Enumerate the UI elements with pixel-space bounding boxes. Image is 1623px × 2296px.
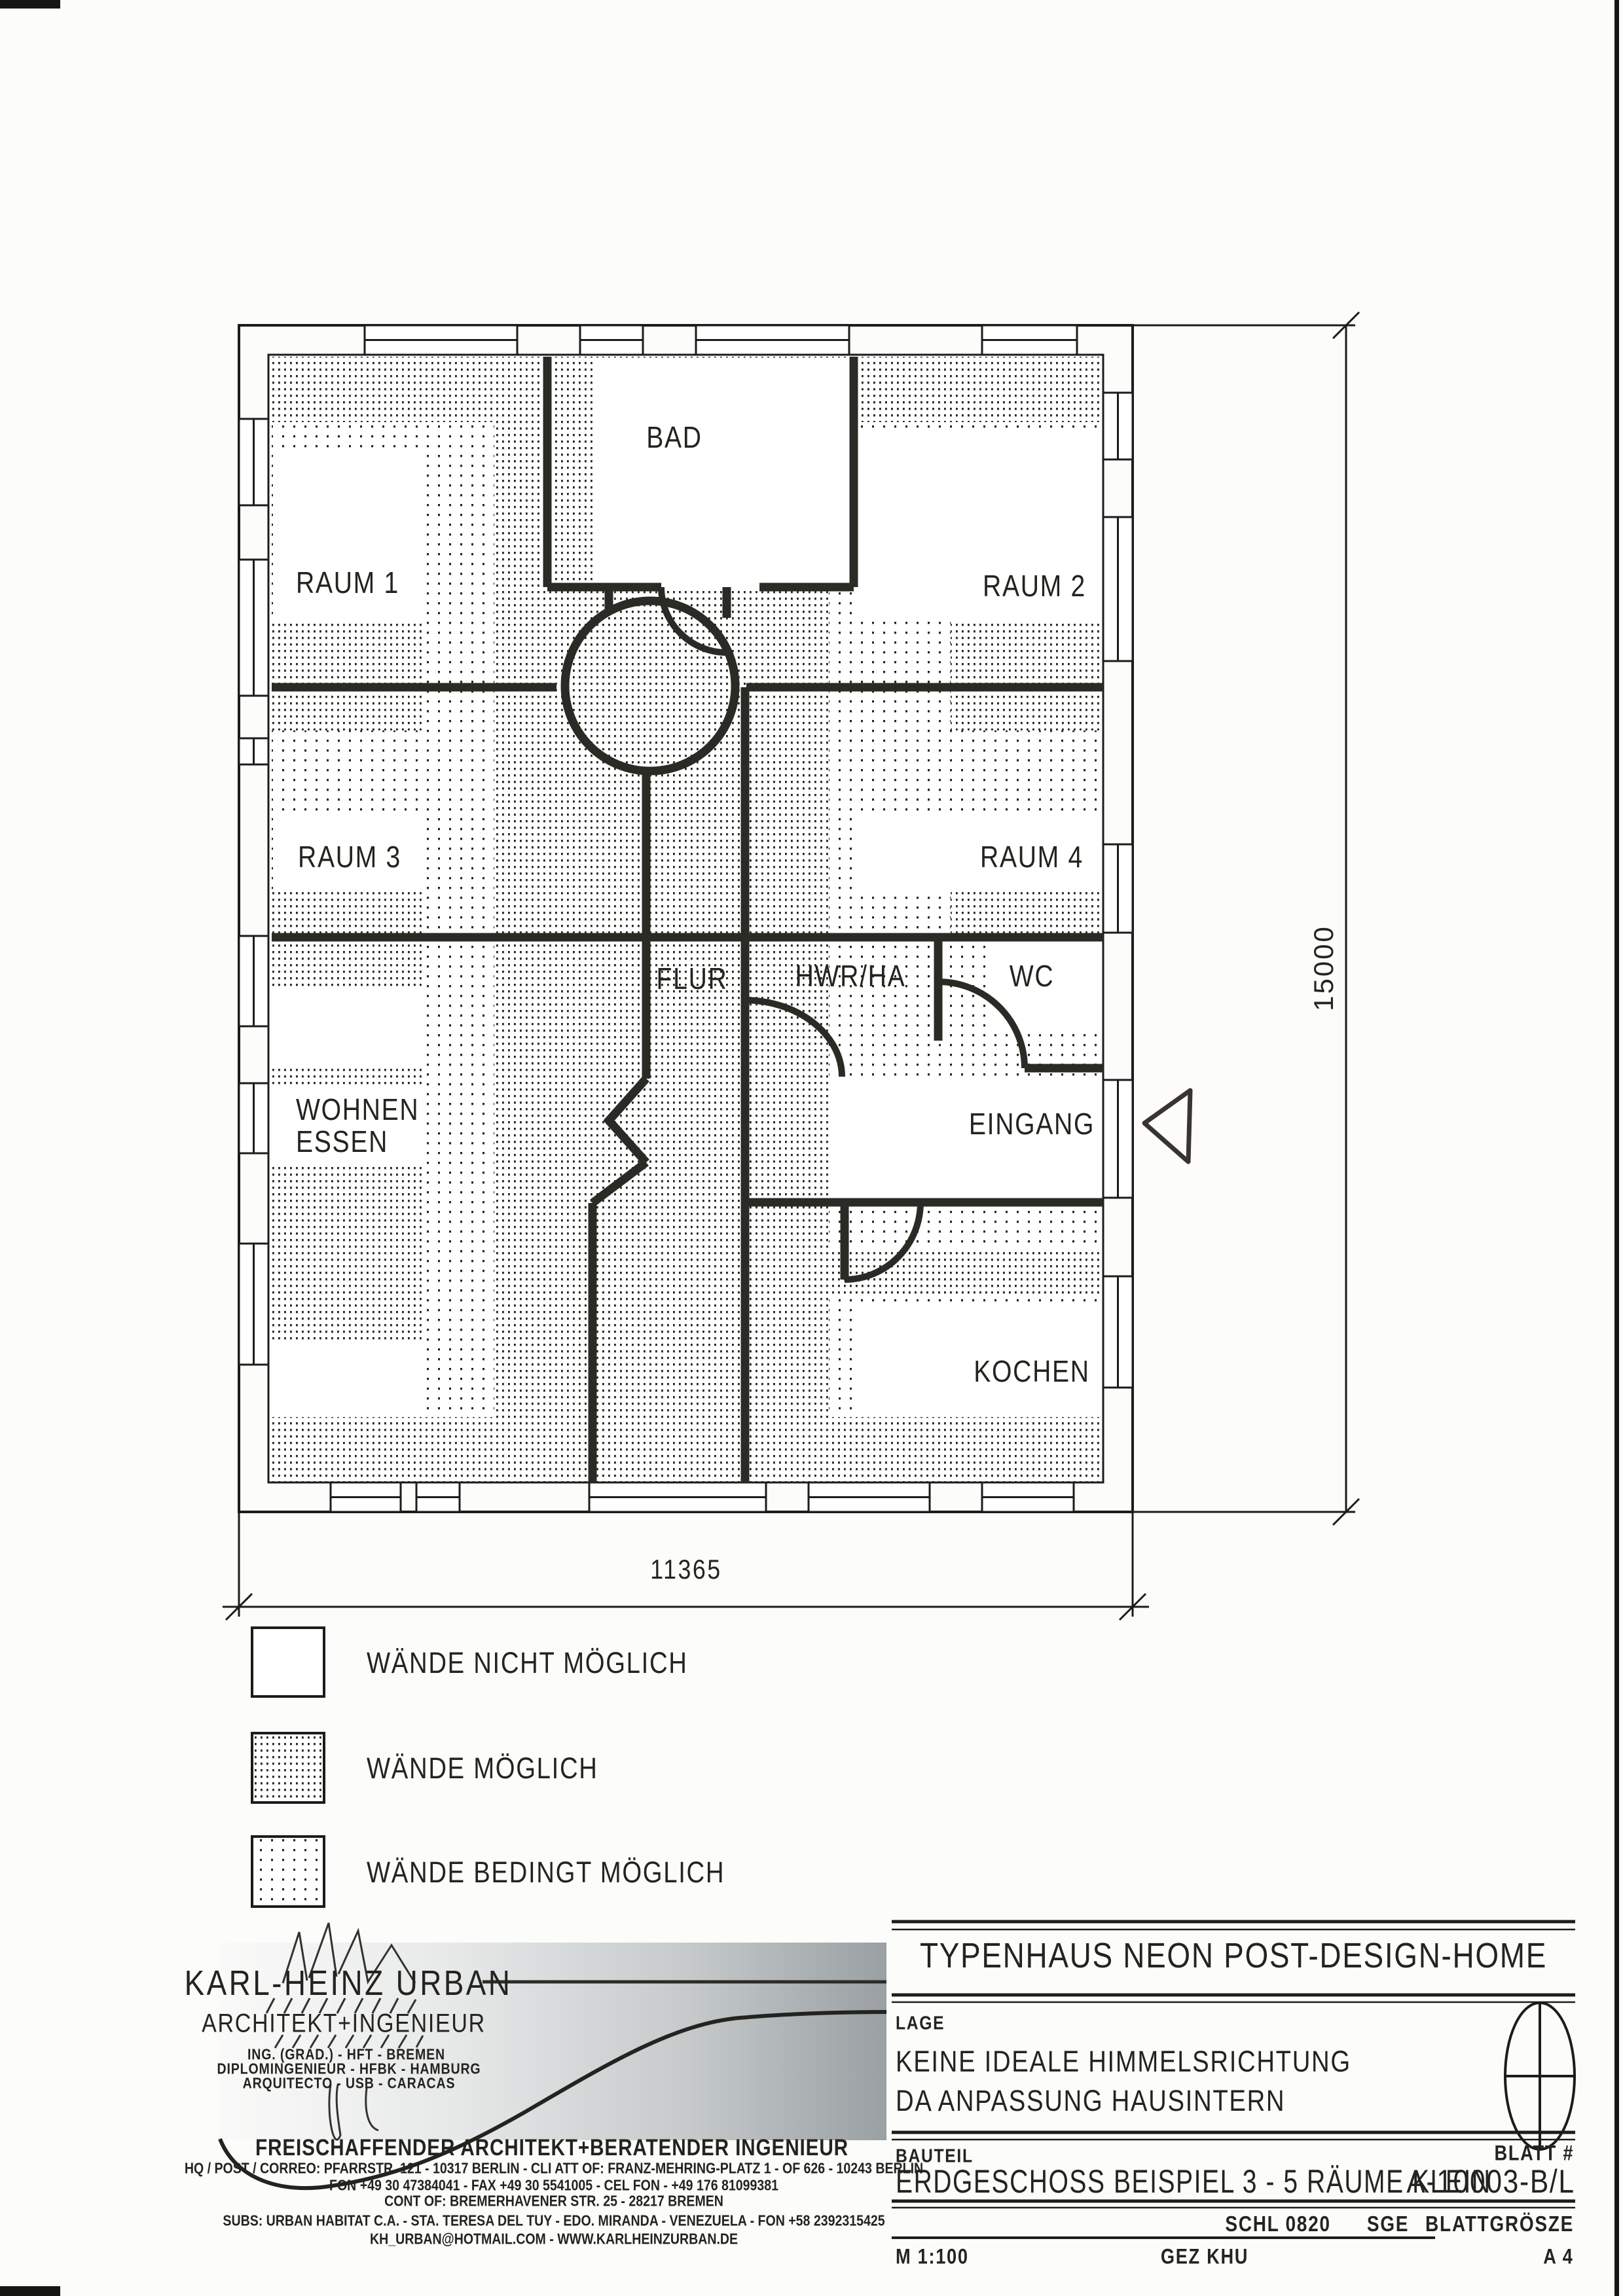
legend-swatch-sparse [252, 1837, 324, 1907]
lage-line-2: DA ANPASSUNG HAUSINTERN [896, 2084, 1285, 2118]
blatt-label: BLATT # [1494, 2142, 1574, 2166]
schl-value: SCHL 0820 [1225, 2212, 1330, 2236]
room-label-bad: BAD [646, 420, 702, 455]
room-label-wohnen: WOHNEN [296, 1092, 419, 1127]
blattgroesze-label: BLATTGRÖSZE [1425, 2212, 1574, 2236]
lage-line-1: KEINE IDEALE HIMMELSRICHTUNG [896, 2045, 1351, 2079]
room-label-wc: WC [1010, 958, 1055, 994]
project-title: TYPENHAUS NEON POST-DESIGN-HOME [920, 1935, 1547, 1976]
room-label-flur: FLUR [657, 961, 728, 996]
legend-swatch-dense [252, 1733, 324, 1803]
legend-label-walls-not-possible: WÄNDE NICHT MÖGLICH [367, 1646, 688, 1680]
room-label-essen: ESSEN [296, 1124, 388, 1159]
legend-label-walls-possible: WÄNDE MÖGLICH [367, 1751, 598, 1785]
architect-credential-3: ARQUITECTO - USB - CARACAS [243, 2075, 456, 2092]
blattformat-value: A 4 [1544, 2245, 1574, 2269]
bauteil-value: ERDGESCHOSS BEISPIEL 3 - 5 RÄUME KLEIN [896, 2162, 1491, 2200]
drawing-sheet: BAD RAUM 1 RAUM 2 RAUM 3 RAUM 4 FLUR HWR… [0, 0, 1623, 2296]
lage-label: LAGE [896, 2013, 945, 2035]
architect-address-5: KH_URBAN@HOTMAIL.COM - WWW.KARLHEINZURBA… [370, 2231, 738, 2248]
entrance-arrow-icon [1144, 1090, 1190, 1162]
dimension-height: 15000 [1308, 925, 1340, 1011]
room-label-kochen: KOCHEN [974, 1354, 1089, 1389]
room-label-raum2: RAUM 2 [983, 568, 1086, 603]
architect-address-2: FON +49 30 47384041 - FAX +49 30 5541005… [329, 2177, 778, 2195]
architect-address-3: CONT OF: BREMERHAVENER STR. 25 - 28217 B… [384, 2193, 723, 2210]
dimension-width: 11365 [650, 1554, 721, 1585]
legend-swatch-none [252, 1628, 324, 1696]
room-label-hwr: HWR/HA [795, 958, 906, 994]
room-label-eingang: EINGANG [969, 1106, 1095, 1141]
sge-value: SGE [1367, 2212, 1409, 2236]
massstab-value: M 1:100 [896, 2245, 969, 2269]
architect-address-1: HQ / POST / CORREO: PFARRSTR. 121 - 1031… [185, 2160, 923, 2178]
architect-name: KARL-HEINZ URBAN [185, 1963, 513, 2003]
gezeichnet-value: GEZ KHU [1161, 2245, 1249, 2269]
compass-icon [1504, 2003, 1576, 2149]
scan-edge-artifact [1614, 0, 1619, 2296]
architect-title: ARCHITEKT+INGENIEUR [202, 2009, 486, 2039]
architect-address-4: SUBS: URBAN HABITAT C.A. - STA. TERESA D… [223, 2212, 884, 2230]
architect-tagline: FREISCHAFFENDER ARCHITEKT+BERATENDER ING… [255, 2135, 848, 2161]
room-label-raum4: RAUM 4 [980, 839, 1084, 874]
legend-swatches [252, 1628, 324, 1907]
room-label-raum3: RAUM 3 [298, 839, 401, 874]
room-label-raum1: RAUM 1 [296, 565, 399, 600]
blatt-number: A-10003-B/L [1407, 2162, 1575, 2200]
legend-label-walls-conditionally-possible: WÄNDE BEDINGT MÖGLICH [367, 1856, 725, 1890]
